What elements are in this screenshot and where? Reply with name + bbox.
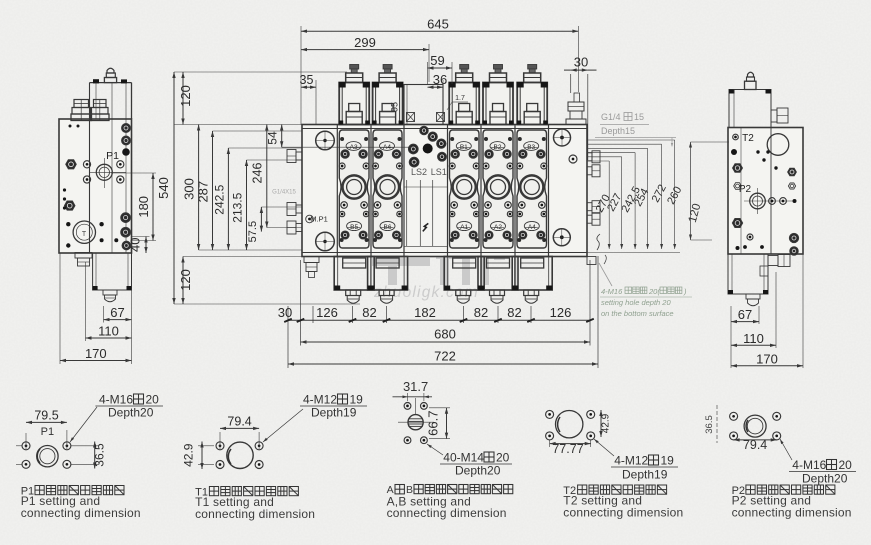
- svg-text:19: 19: [350, 393, 364, 407]
- svg-text:67: 67: [110, 305, 124, 320]
- svg-text:setting hole depth 20: setting hole depth 20: [601, 298, 671, 307]
- svg-text:P1: P1: [41, 426, 54, 438]
- svg-text:30: 30: [278, 305, 292, 320]
- svg-text:57.5: 57.5: [247, 221, 259, 242]
- svg-text:G1/4X15: G1/4X15: [272, 190, 296, 196]
- svg-text:79.4: 79.4: [743, 438, 767, 452]
- svg-text:Depth19: Depth19: [622, 468, 668, 482]
- svg-text:4-M16: 4-M16: [601, 287, 623, 296]
- svg-text:Depth20: Depth20: [455, 464, 501, 478]
- svg-text:Depth19: Depth19: [311, 406, 357, 420]
- svg-text:82: 82: [362, 305, 376, 320]
- svg-text:T2: T2: [742, 133, 754, 144]
- svg-text:Depth20: Depth20: [108, 406, 154, 420]
- svg-text:connecting dimension: connecting dimension: [21, 506, 141, 520]
- svg-text:36.5: 36.5: [93, 443, 107, 467]
- svg-text:30: 30: [574, 55, 588, 70]
- svg-text:120: 120: [178, 269, 193, 291]
- svg-text:82: 82: [507, 305, 521, 320]
- svg-text:66.7: 66.7: [426, 411, 441, 436]
- svg-text:20: 20: [496, 451, 510, 465]
- svg-text:126: 126: [316, 305, 338, 320]
- svg-text:LS2: LS2: [411, 167, 427, 177]
- svg-text:680: 680: [434, 326, 456, 341]
- svg-text:722: 722: [434, 348, 456, 363]
- svg-text:20(: 20(: [648, 287, 661, 296]
- svg-text:G1/4: G1/4: [601, 112, 621, 122]
- svg-text:36.5: 36.5: [704, 415, 715, 434]
- svg-text:T: T: [82, 231, 87, 238]
- svg-text:connecting dimension: connecting dimension: [732, 506, 852, 520]
- svg-text:19: 19: [661, 454, 675, 468]
- svg-text:40: 40: [128, 238, 143, 252]
- svg-text:connecting dimension: connecting dimension: [563, 506, 683, 520]
- svg-text:170: 170: [85, 346, 107, 361]
- svg-text:4-M12: 4-M12: [614, 454, 648, 468]
- svg-text:67: 67: [738, 307, 752, 322]
- svg-text:42.9: 42.9: [182, 443, 196, 467]
- svg-text:213.5: 213.5: [231, 192, 245, 222]
- svg-text:4-M16: 4-M16: [792, 458, 826, 472]
- svg-text:77.77: 77.77: [552, 442, 583, 456]
- svg-text:540: 540: [156, 177, 171, 199]
- svg-text:35: 35: [300, 73, 314, 87]
- svg-text:79.4: 79.4: [227, 415, 251, 429]
- svg-text:36: 36: [433, 72, 447, 87]
- svg-text:82: 82: [474, 305, 488, 320]
- svg-text:40-M14: 40-M14: [443, 451, 484, 465]
- svg-text:299: 299: [354, 35, 376, 50]
- svg-text:182: 182: [414, 305, 436, 320]
- svg-text:645: 645: [427, 17, 449, 32]
- svg-text:287: 287: [196, 181, 211, 203]
- svg-text:M.P1: M.P1: [310, 215, 328, 224]
- svg-text:): ): [683, 287, 687, 296]
- svg-text:54: 54: [266, 131, 280, 145]
- svg-text:connecting dimension: connecting dimension: [195, 507, 315, 521]
- svg-text:110: 110: [98, 324, 119, 339]
- svg-text:Depth20: Depth20: [802, 472, 848, 486]
- svg-text:120: 120: [178, 85, 193, 107]
- svg-text:79.5: 79.5: [34, 409, 58, 423]
- svg-text:LS1: LS1: [431, 167, 447, 177]
- svg-text:1.7: 1.7: [455, 95, 465, 102]
- svg-text:Depth15: Depth15: [601, 126, 635, 136]
- svg-text:on the bottom surface: on the bottom surface: [601, 309, 674, 318]
- svg-text:15: 15: [634, 112, 644, 122]
- svg-text:180: 180: [136, 196, 151, 218]
- svg-text:300: 300: [182, 178, 197, 200]
- svg-text:59: 59: [430, 53, 444, 68]
- svg-text:95: 95: [390, 102, 400, 112]
- svg-text:110: 110: [743, 331, 764, 346]
- svg-text:P1: P1: [106, 150, 119, 162]
- svg-text:connecting dimension: connecting dimension: [387, 506, 507, 520]
- svg-text:170: 170: [756, 352, 778, 367]
- svg-text:31.7: 31.7: [403, 379, 428, 394]
- svg-text:20: 20: [839, 458, 853, 472]
- svg-text:4-M12: 4-M12: [303, 393, 337, 407]
- svg-text:246: 246: [251, 163, 265, 184]
- svg-text:4-M16: 4-M16: [99, 393, 133, 407]
- svg-text:zhuoligk.com: zhuoligk.com: [373, 284, 479, 301]
- svg-text:42.9: 42.9: [601, 413, 612, 433]
- svg-text:242.5: 242.5: [213, 184, 227, 214]
- svg-text:126: 126: [550, 305, 572, 320]
- svg-text:20: 20: [146, 393, 160, 407]
